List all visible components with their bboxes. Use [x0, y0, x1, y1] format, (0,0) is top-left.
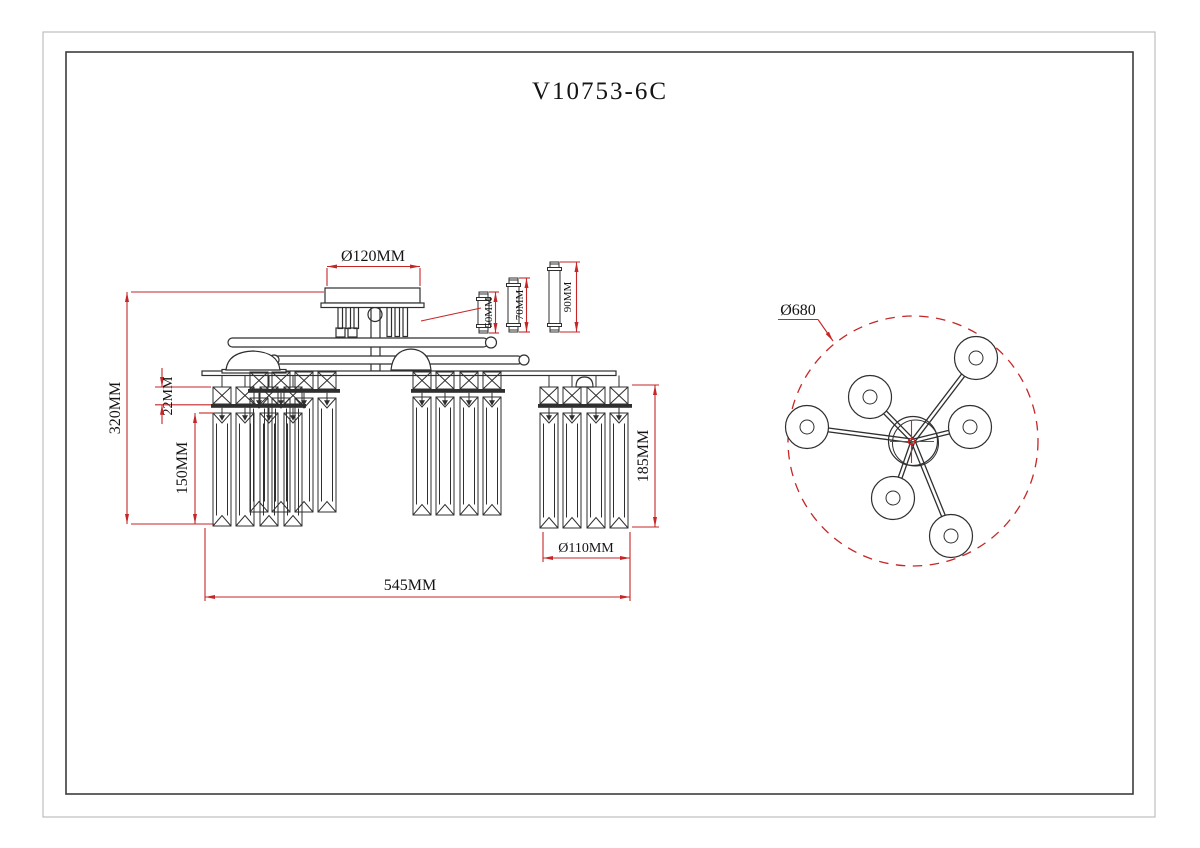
crystal-cluster-right	[538, 376, 632, 529]
crystal-cluster-middle	[411, 372, 505, 515]
dim-prism-length-left-label: 150MM	[174, 442, 191, 494]
dim-canopy-diameter-label: Ø120MM	[341, 248, 405, 265]
dim-shade-diameter-label: Ø110MM	[558, 541, 614, 556]
dim-pipe-90-label: 90MM	[562, 282, 574, 313]
technical-drawing: V10753-6C	[0, 0, 1200, 848]
dim-prism-length-left: 150MM	[174, 413, 214, 524]
shade-4	[949, 406, 992, 449]
dim-overall-width-label: 545MM	[384, 577, 436, 594]
shade-dome-left	[222, 351, 286, 373]
shade-6	[930, 515, 973, 558]
shades-top-view	[786, 337, 998, 558]
dim-cube-height: 22MM	[155, 368, 211, 424]
dim-shade-diameter: Ø110MM	[543, 532, 630, 601]
pipe-leader-line	[421, 308, 481, 321]
bar-end-knob	[576, 377, 593, 387]
dim-drop-length-right: 185MM	[632, 385, 659, 527]
dim-pipe-50: 50MM	[483, 292, 499, 333]
dim-overall-height: 320MM	[107, 292, 324, 524]
drawing-sheet: V10753-6C	[0, 0, 1200, 848]
dim-canopy-diameter: Ø120MM	[327, 248, 420, 286]
dim-pipe-50-label: 50MM	[483, 297, 495, 328]
pipe-90mm	[548, 262, 562, 332]
shade-3	[786, 406, 829, 449]
dim-cube-height-label: 22MM	[161, 376, 176, 415]
shade-1	[955, 337, 998, 380]
top-view: Ø680	[778, 302, 1038, 566]
shade-5	[872, 477, 915, 520]
shade-2	[849, 376, 892, 419]
dim-drop-length-right-label: 185MM	[635, 430, 652, 482]
front-view: Ø120MM 320MM 22MM 150MM 185MM	[107, 248, 659, 601]
crystal-cluster-left-back	[248, 372, 340, 512]
dim-overall-diameter-label: Ø680	[780, 302, 816, 319]
dim-overall-width: 545MM	[205, 528, 630, 601]
dim-pipe-70-label: 70MM	[514, 290, 526, 321]
drawing-title: V10753-6C	[532, 78, 668, 105]
dim-overall-diameter: Ø680	[778, 302, 833, 341]
shade-dome-right	[391, 349, 431, 370]
dim-pipe-90: 90MM	[560, 262, 580, 332]
dim-overall-height-label: 320MM	[107, 382, 124, 434]
